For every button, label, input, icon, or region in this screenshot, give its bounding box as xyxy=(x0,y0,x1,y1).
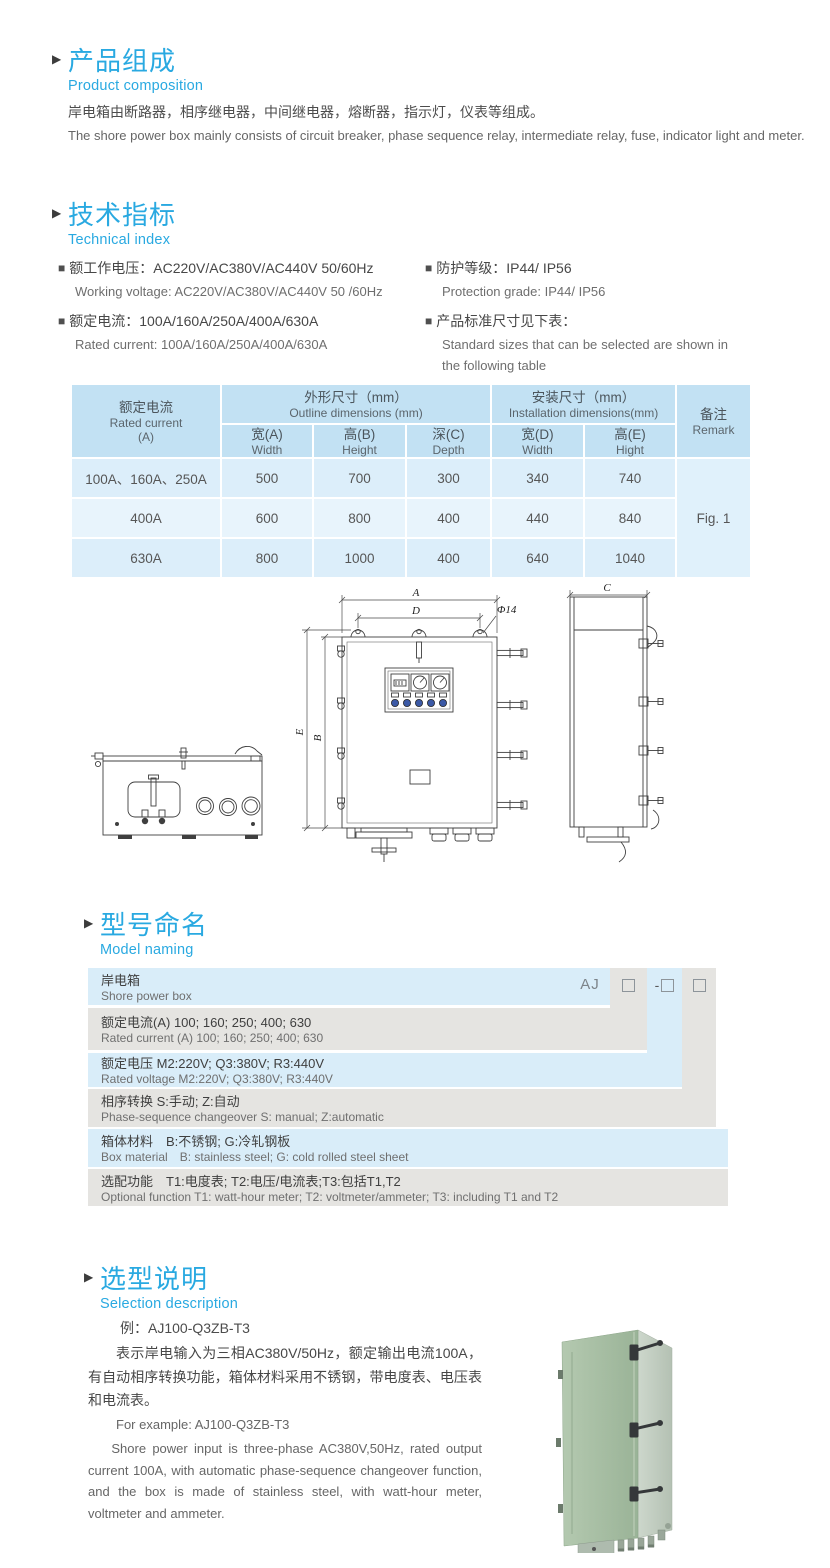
enclosure-box xyxy=(556,1330,672,1553)
model-row-phase-sequence: 相序转换 S:手动; Z:自动 Phase-sequence changeove… xyxy=(88,1089,716,1127)
cell-width: 500 xyxy=(221,458,313,498)
cell-install-height: 1040 xyxy=(584,538,676,578)
model-row-zh: 额定电流(A) 100; 160; 250; 400; 630 xyxy=(88,1008,647,1031)
cell-remark: Fig. 1 xyxy=(676,458,751,578)
selection-title-zh: 选型说明 xyxy=(100,1264,238,1294)
col-header-remark: 备注 Remark xyxy=(676,384,751,458)
dimension-table: 额定电流 Rated current (A) 外形尺寸（mm） Outline … xyxy=(70,383,752,579)
model-row-rated-voltage: 额定电压 M2:220V; Q3:380V; R3:440V Rated vol… xyxy=(88,1053,682,1087)
model-row-en: Rated voltage M2:220V; Q3:380V; R3:440V xyxy=(88,1072,682,1087)
indicator-lamps xyxy=(391,693,446,707)
header-zh: 外形尺寸（mm） xyxy=(222,389,490,406)
model-row-zh: 相序转换 S:手动; Z:自动 xyxy=(88,1089,716,1110)
spec-rated-current: ■额定电流：100A/160A/250A/400A/630A Rated cur… xyxy=(58,310,418,355)
sub-header-width-d: 宽(D) Width xyxy=(491,424,584,458)
cell-height: 800 xyxy=(313,498,406,538)
model-naming-heading: ▶ 型号命名 Model naming xyxy=(100,910,208,958)
side-bottom-bracket xyxy=(579,827,629,862)
sub-header-height-e: 高(E) Hight xyxy=(584,424,676,458)
spec-zh: 防护等级：IP44/ IP56 xyxy=(436,260,571,276)
spec-en: Rated current: 100A/160A/250A/400A/630A xyxy=(58,334,418,355)
cell-install-width: 340 xyxy=(491,458,584,498)
group-header-installation: 安装尺寸（mm） Installation dimensions(mm) xyxy=(491,384,676,424)
header-zh: 高(E) xyxy=(585,426,675,443)
product-photo xyxy=(550,1318,715,1553)
header-unit: (A) xyxy=(72,430,220,444)
model-code-box xyxy=(693,979,706,992)
spec-en: Protection grade: IP44/ IP56 xyxy=(425,281,745,302)
cell-install-width: 440 xyxy=(491,498,584,538)
hinge-pins xyxy=(497,648,527,810)
dim-label-b: B xyxy=(312,734,324,741)
cell-install-width: 640 xyxy=(491,538,584,578)
spec-zh: 额定电流：100A/160A/250A/400A/630A xyxy=(69,313,318,329)
model-code-box xyxy=(622,979,635,992)
model-row-zh: 额定电压 M2:220V; Q3:380V; R3:440V xyxy=(88,1053,682,1072)
spec-column-left: ■额工作电压：AC220V/AC380V/AC440V 50/60Hz Work… xyxy=(58,257,418,363)
sub-header-depth-c: 深(C) Depth xyxy=(406,424,491,458)
model-code-dash: - xyxy=(655,977,660,993)
model-row-en: Optional function T1: watt-hour meter; T… xyxy=(88,1190,728,1205)
dim-label-e: E xyxy=(294,728,306,736)
model-row-zh: 箱体材料 B:不锈钢; G:冷轧钢板 xyxy=(88,1129,728,1150)
cell-current: 630A xyxy=(71,538,221,578)
bottom-view xyxy=(91,746,262,839)
cell-depth: 300 xyxy=(406,458,491,498)
selection-title-en: Selection description xyxy=(100,1296,238,1312)
model-row-shore-power-box: 岸电箱 Shore power box xyxy=(88,968,610,1005)
side-view: C xyxy=(567,582,663,862)
composition-title-en: Product composition xyxy=(68,78,203,94)
cell-depth: 400 xyxy=(406,498,491,538)
model-row-rated-current: 额定电流(A) 100; 160; 250; 400; 630 Rated cu… xyxy=(88,1008,647,1050)
model-naming-table: - 岸电箱 Shore power box AJ 额定电流(A) 100; 16… xyxy=(88,968,748,1208)
model-row-en: Shore power box xyxy=(88,989,610,1004)
cell-height: 700 xyxy=(313,458,406,498)
sub-header-width-a: 宽(A) Width xyxy=(221,424,313,458)
selection-example-zh: 例：AJ100-Q3ZB-T3 xyxy=(120,1318,250,1338)
header-en: Rated current xyxy=(72,416,220,430)
header-zh: 高(B) xyxy=(314,426,405,443)
bullet-icon: ■ xyxy=(425,314,432,328)
col-header-rated-current: 额定电流 Rated current (A) xyxy=(71,384,221,458)
spec-zh: 额工作电压：AC220V/AC380V/AC440V 50/60Hz xyxy=(69,260,373,276)
header-en: Outline dimensions (mm) xyxy=(222,406,490,420)
cell-install-height: 840 xyxy=(584,498,676,538)
cell-width: 800 xyxy=(221,538,313,578)
model-row-en: Rated current (A) 100; 160; 250; 400; 63… xyxy=(88,1031,647,1046)
section-arrow-icon: ▶ xyxy=(52,207,61,219)
selection-heading: ▶ 选型说明 Selection description xyxy=(100,1264,238,1312)
section-arrow-icon: ▶ xyxy=(84,1271,93,1283)
selection-example-en: For example: AJ100-Q3ZB-T3 xyxy=(116,1417,289,1432)
model-row-zh: 选配功能 T1:电度表; T2:电压/电流表;T3:包括T1,T2 xyxy=(88,1169,728,1190)
header-en: Remark xyxy=(677,423,750,437)
dim-label-d: D xyxy=(411,605,420,617)
model-row-box-material: 箱体材料 B:不锈钢; G:冷轧钢板 Box material B: stain… xyxy=(88,1129,728,1167)
section-arrow-icon: ▶ xyxy=(84,917,93,929)
spec-zh: 产品标准尺寸见下表： xyxy=(436,313,576,329)
model-row-zh: 岸电箱 xyxy=(88,968,610,989)
table-row: 100A、160A、250A 500 700 300 340 740 Fig. … xyxy=(71,458,751,498)
header-zh: 安装尺寸（mm） xyxy=(492,389,675,406)
header-zh: 额定电流 xyxy=(72,399,220,416)
model-prefix: AJ xyxy=(572,976,608,993)
model-row-optional-function: 选配功能 T1:电度表; T2:电压/电流表;T3:包括T1,T2 Option… xyxy=(88,1169,728,1206)
header-en: Installation dimensions(mm) xyxy=(492,406,675,420)
technical-heading: ▶ 技术指标 Technical index xyxy=(68,200,176,248)
cell-current: 100A、160A、250A xyxy=(71,458,221,498)
cable-gland-holes xyxy=(197,797,261,816)
model-naming-title-zh: 型号命名 xyxy=(100,910,208,940)
header-zh: 深(C) xyxy=(407,426,490,443)
composition-body-en: The shore power box mainly consists of c… xyxy=(68,128,805,143)
cell-height: 1000 xyxy=(313,538,406,578)
spec-protection-grade: ■防护等级：IP44/ IP56 Protection grade: IP44/… xyxy=(425,257,745,302)
spec-en: Standard sizes that can be selected are … xyxy=(425,334,728,376)
table-row: 400A 600 800 400 440 840 xyxy=(71,498,751,538)
spec-en: Working voltage: AC220V/AC380V/AC440V 50… xyxy=(58,281,418,302)
front-view: A D Φ14 E B xyxy=(294,587,527,862)
meter-panel xyxy=(385,668,453,712)
header-zh: 备注 xyxy=(677,406,750,423)
spec-column-right: ■防护等级：IP44/ IP56 Protection grade: IP44/… xyxy=(425,257,745,384)
cell-depth: 400 xyxy=(406,538,491,578)
dim-label-a: A xyxy=(412,587,420,599)
bottom-view-clamps xyxy=(91,746,262,769)
composition-body-zh: 岸电箱由断路器，相序继电器，中间继电器，熔断器，指示灯，仪表等组成。 xyxy=(68,102,544,122)
cell-width: 600 xyxy=(221,498,313,538)
header-zh: 宽(D) xyxy=(492,426,583,443)
header-en: Depth xyxy=(407,443,490,457)
composition-heading: ▶ 产品组成 Product composition xyxy=(68,46,203,94)
spec-working-voltage: ■额工作电压：AC220V/AC380V/AC440V 50/60Hz Work… xyxy=(58,257,418,302)
group-header-outline: 外形尺寸（mm） Outline dimensions (mm) xyxy=(221,384,491,424)
technical-drawing: A D Φ14 E B xyxy=(85,580,745,890)
model-row-en: Phase-sequence changeover S: manual; Z:a… xyxy=(88,1110,716,1125)
bullet-icon: ■ xyxy=(425,261,432,275)
technical-title-zh: 技术指标 xyxy=(68,200,176,230)
model-naming-title-en: Model naming xyxy=(100,942,208,958)
header-en: Width xyxy=(492,443,583,457)
bullet-icon: ■ xyxy=(58,314,65,328)
catalog-page: ▶ 产品组成 Product composition 岸电箱由断路器，相序继电器… xyxy=(0,0,830,1568)
header-en: Height xyxy=(314,443,405,457)
table-row: 630A 800 1000 400 640 1040 xyxy=(71,538,751,578)
header-en: Hight xyxy=(585,443,675,457)
selection-body-zh: 表示岸电输入为三相AC380V/50Hz，额定输出电流100A，有自动相序转换功… xyxy=(88,1342,482,1413)
model-row-en: Box material B: stainless steel; G: cold… xyxy=(88,1150,728,1165)
dim-label-c: C xyxy=(603,582,611,594)
spec-standard-sizes: ■产品标准尺寸见下表： Standard sizes that can be s… xyxy=(425,310,745,376)
selection-body-en: Shore power input is three-phase AC380V,… xyxy=(88,1438,482,1524)
cell-current: 400A xyxy=(71,498,221,538)
door-bolts xyxy=(338,646,345,809)
front-bottom-fittings xyxy=(347,828,494,862)
model-code-box xyxy=(661,979,674,992)
bullet-icon: ■ xyxy=(58,261,65,275)
header-zh: 宽(A) xyxy=(222,426,312,443)
cell-install-height: 740 xyxy=(584,458,676,498)
header-en: Width xyxy=(222,443,312,457)
composition-title-zh: 产品组成 xyxy=(68,46,203,76)
sub-header-height-b: 高(B) Height xyxy=(313,424,406,458)
dim-label-phi14: Φ14 xyxy=(497,604,517,616)
door-hinges xyxy=(556,1370,563,1513)
technical-title-en: Technical index xyxy=(68,232,176,248)
section-arrow-icon: ▶ xyxy=(52,53,61,65)
